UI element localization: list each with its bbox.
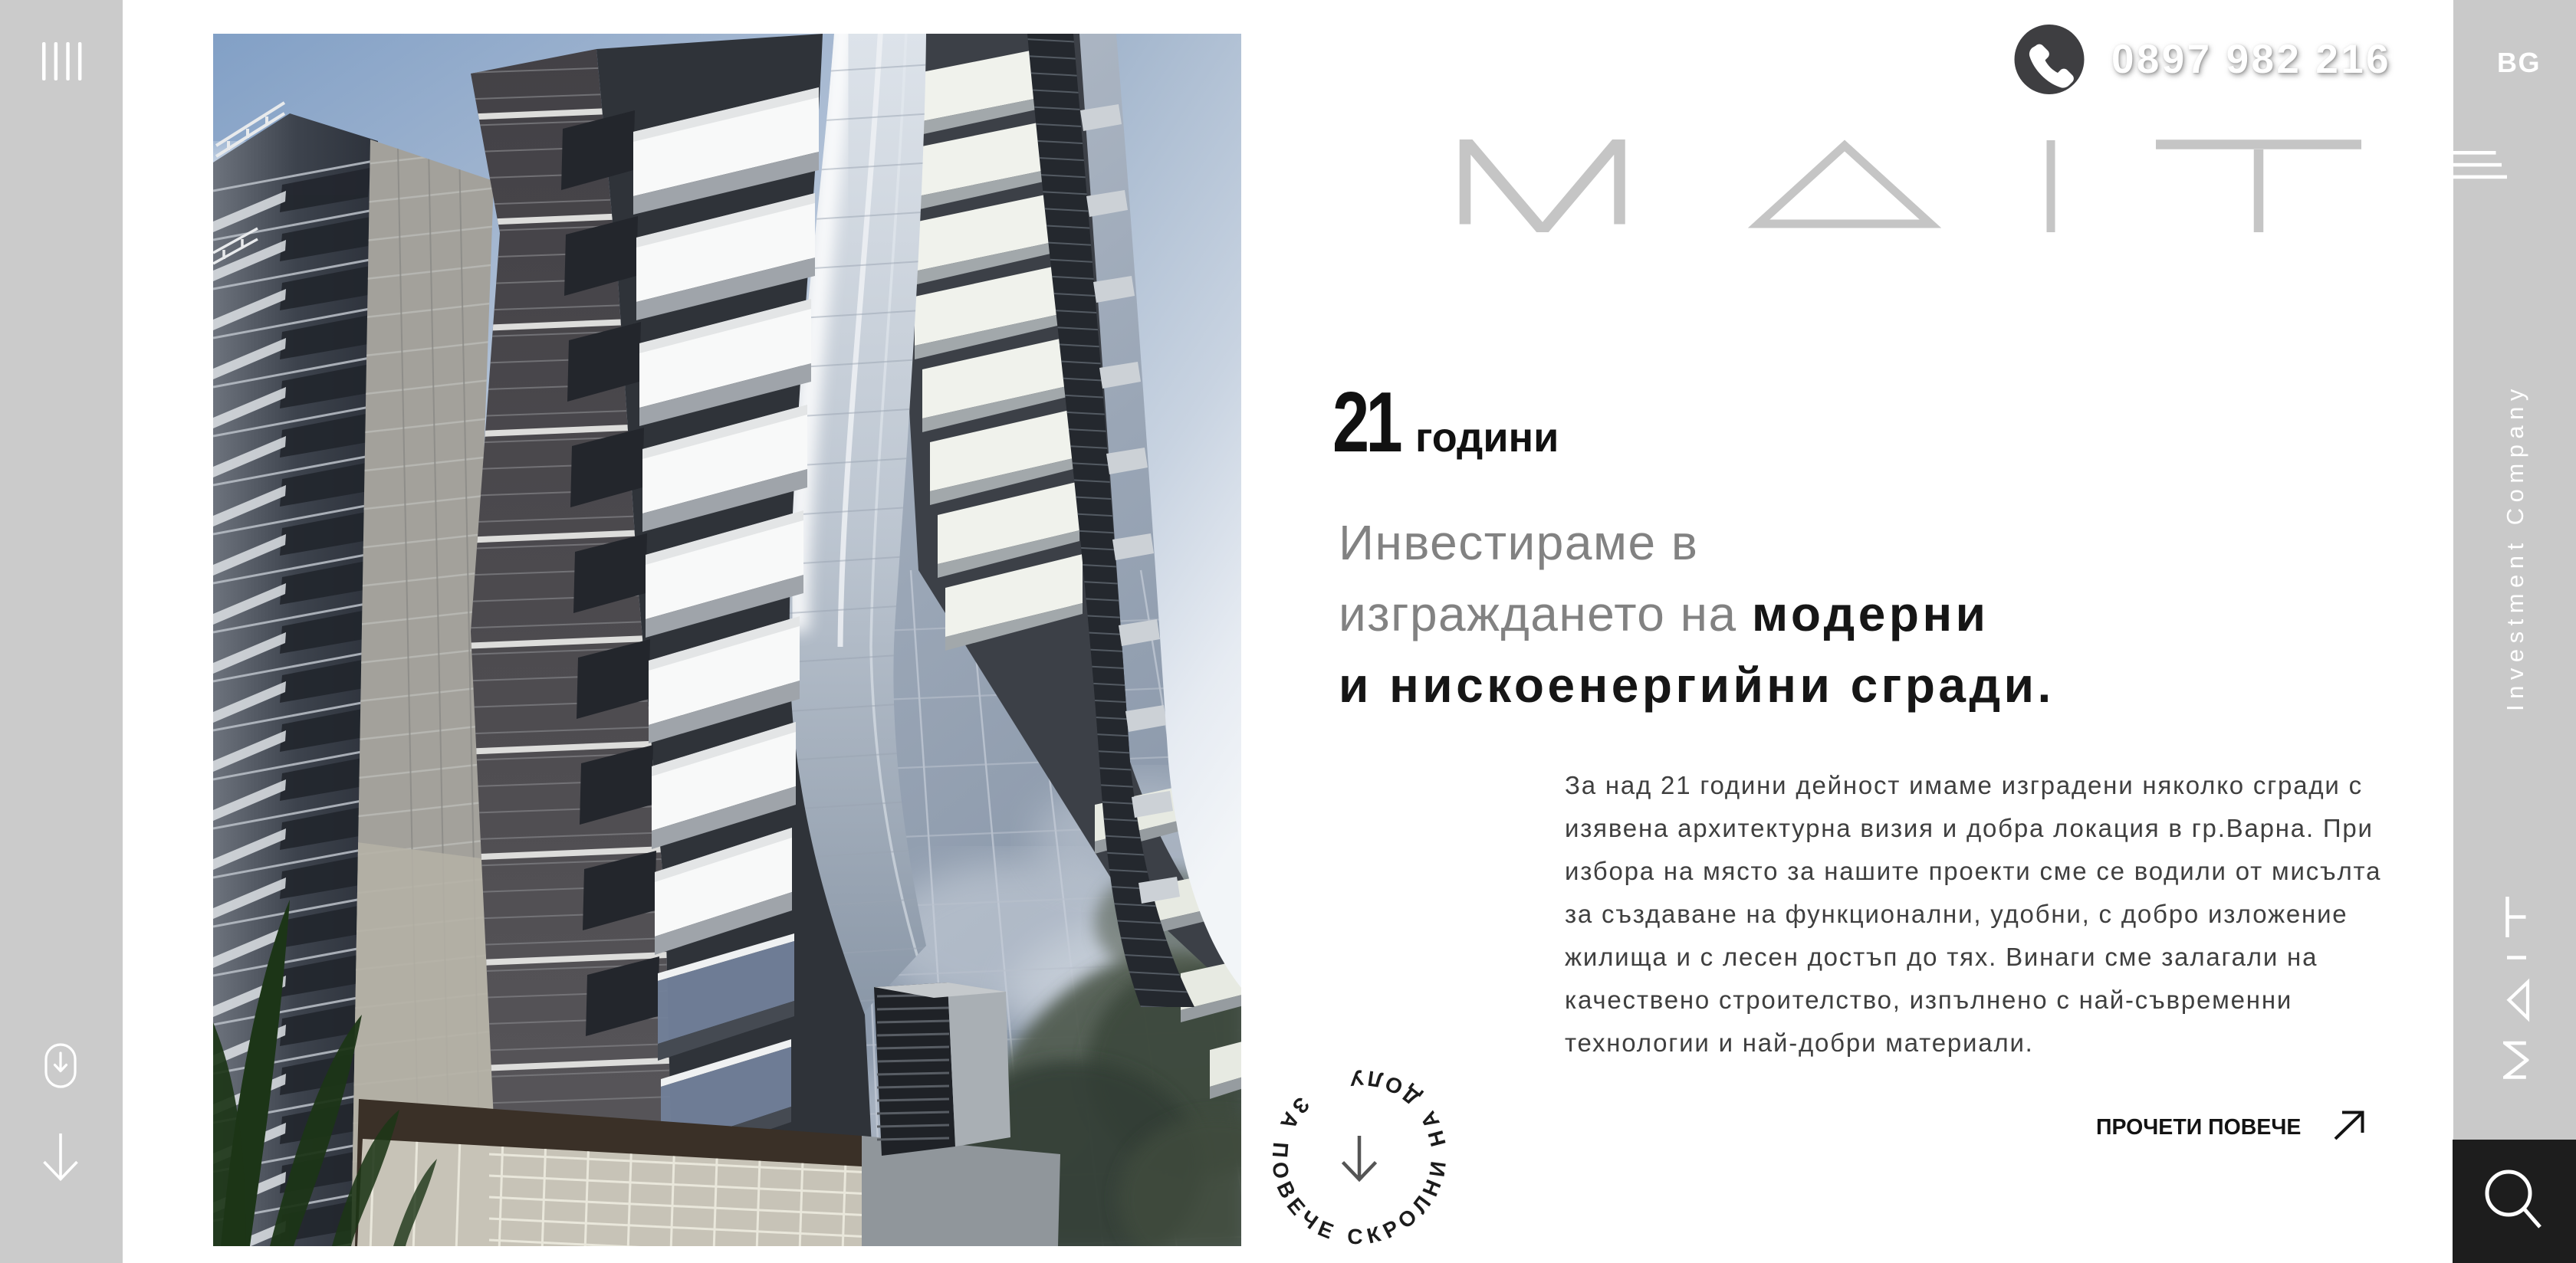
svg-text:ЗА ПОВЕЧЕ СКРОЛНИ НА ДОЛУ: ЗА ПОВЕЧЕ СКРОЛНИ НА ДОЛУ <box>1267 1065 1451 1248</box>
